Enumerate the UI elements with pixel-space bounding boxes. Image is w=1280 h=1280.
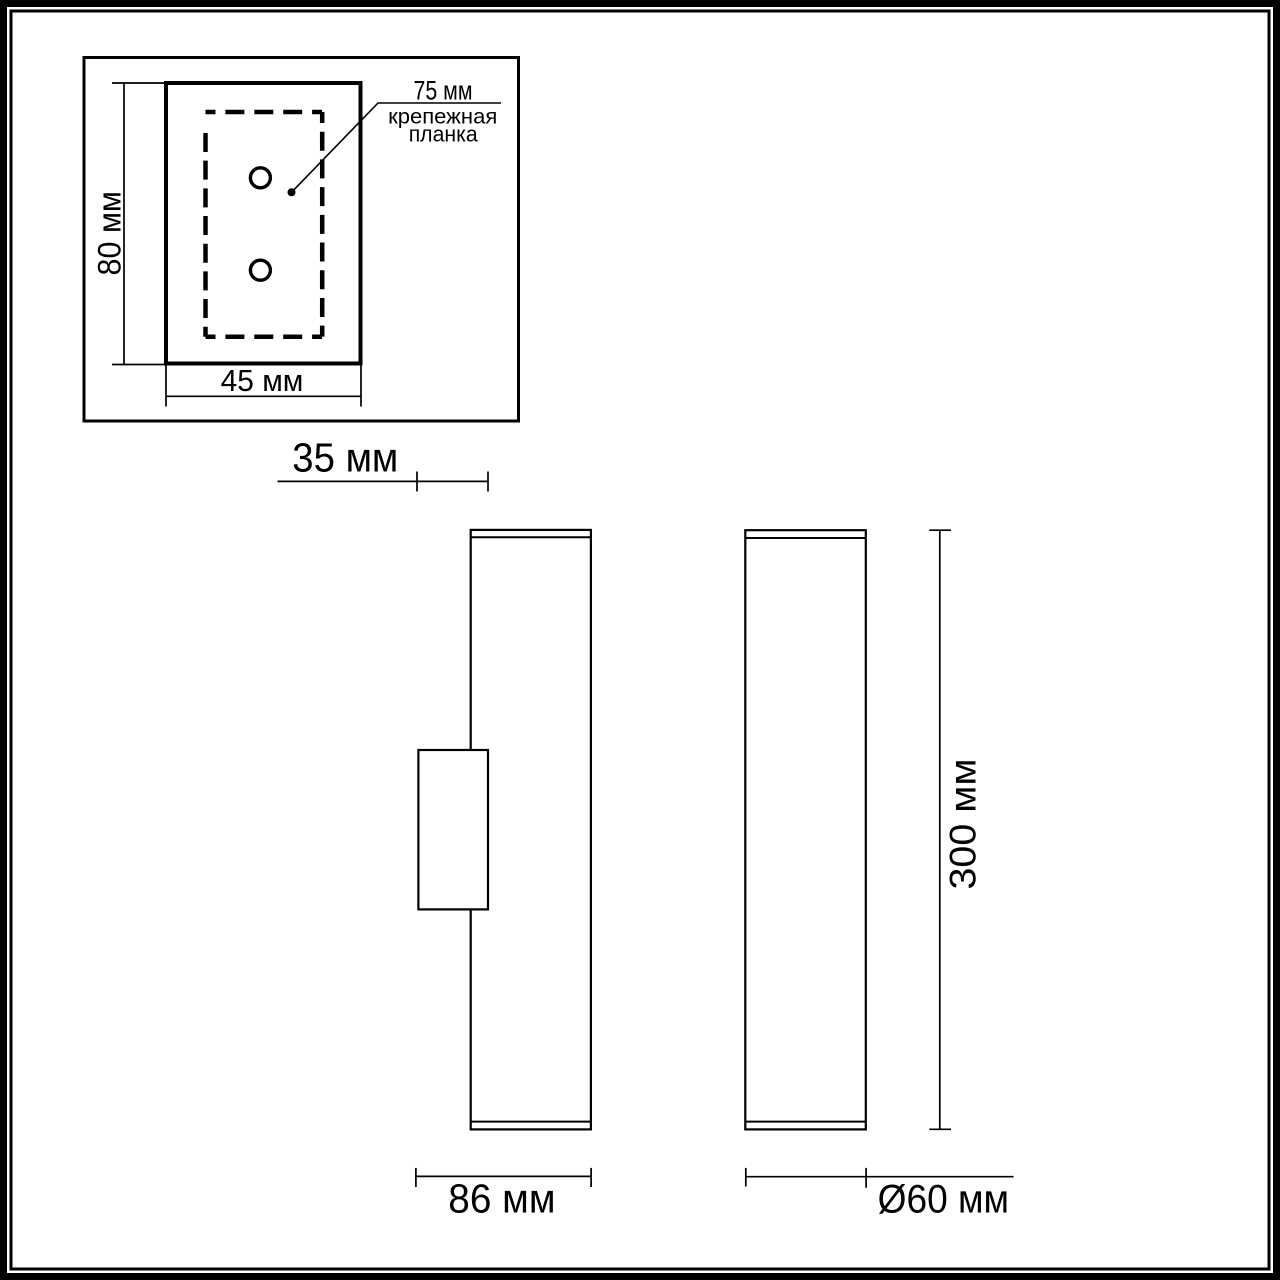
svg-text:35 мм: 35 мм: [292, 435, 398, 481]
svg-text:Ø60 мм: Ø60 мм: [878, 1178, 1009, 1222]
svg-text:80 мм: 80 мм: [92, 191, 128, 275]
svg-text:75 мм: 75 мм: [414, 76, 473, 106]
svg-text:45 мм: 45 мм: [221, 363, 304, 398]
svg-text:300 мм: 300 мм: [943, 759, 984, 890]
svg-text:86 мм: 86 мм: [448, 1176, 555, 1222]
svg-text:планка: планка: [409, 121, 478, 146]
